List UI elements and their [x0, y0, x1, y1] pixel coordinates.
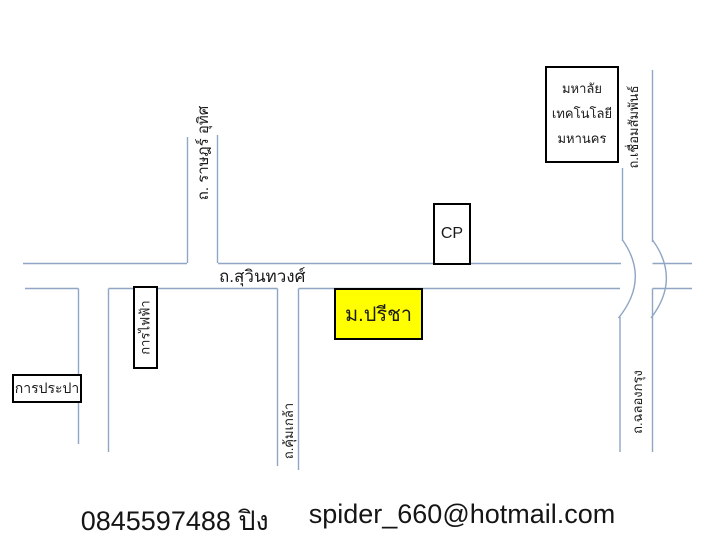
road-lower-left-edges — [79, 289, 109, 453]
university-box-line3: มหานคร — [557, 132, 606, 147]
preecha-box: ม.ปรีชา — [334, 288, 423, 340]
contact-email: spider_660@hotmail.com — [309, 499, 616, 542]
university-box: มหาลัย เทคโนโลยี มหานคร — [545, 66, 619, 163]
road-label-chuem-samphan: ถ.เชื่อมสัมพันธ์ — [625, 77, 641, 177]
road-label-khum-klao: ถ.คุ้มเกล้า — [280, 395, 296, 467]
map-page: มหาลัย เทคโนโลยี มหานคร CP ม.ปรีชา การปร… — [0, 0, 722, 542]
road-label-rat-uthit: ถ. ราษฎร์ อุทิศ — [194, 97, 212, 209]
university-box-line1: มหาลัย — [562, 82, 602, 97]
university-box-line2: เทคโนโลยี — [552, 107, 612, 122]
intersection-arc-curves — [619, 240, 667, 318]
preecha-box-label: ม.ปรีชา — [345, 298, 412, 330]
road-label-chalong-krung: ถ.ฉลองกรุง — [629, 364, 645, 440]
road-label-suwinthawong: ถ.สุวินทวงศ์ — [219, 263, 305, 290]
cp-box-label: CP — [441, 225, 463, 243]
waterworks-box: การประปา — [12, 374, 82, 403]
electricity-box-label: การไฟฟ้า — [135, 300, 156, 354]
cp-box: CP — [433, 203, 471, 265]
contact-footer: 0845597488 ปิง spider_660@hotmail.com — [0, 499, 709, 542]
electricity-box: การไฟฟ้า — [133, 286, 158, 369]
contact-phone: 0845597488 ปิง — [81, 499, 269, 542]
waterworks-box-label: การประปา — [15, 378, 80, 400]
